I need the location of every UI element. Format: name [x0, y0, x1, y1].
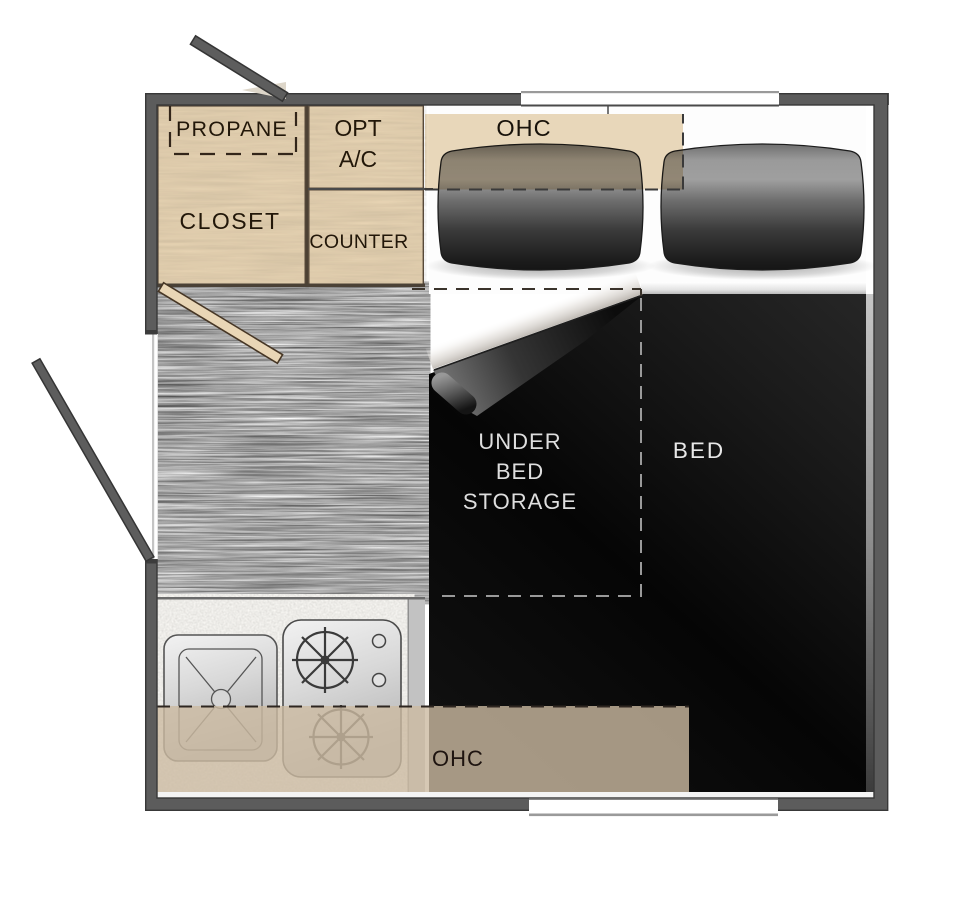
svg-text:UNDER: UNDER: [478, 429, 561, 454]
svg-text:BED: BED: [496, 459, 544, 484]
svg-text:OHC: OHC: [432, 746, 484, 771]
svg-text:CLOSET: CLOSET: [179, 208, 280, 234]
svg-text:OPT: OPT: [334, 115, 381, 141]
svg-text:BED: BED: [673, 438, 725, 463]
svg-text:A/C: A/C: [339, 146, 377, 172]
svg-text:PROPANE: PROPANE: [176, 117, 288, 141]
svg-text:OHC: OHC: [496, 115, 551, 141]
svg-text:STORAGE: STORAGE: [463, 489, 577, 514]
svg-text:COUNTER: COUNTER: [309, 231, 408, 253]
